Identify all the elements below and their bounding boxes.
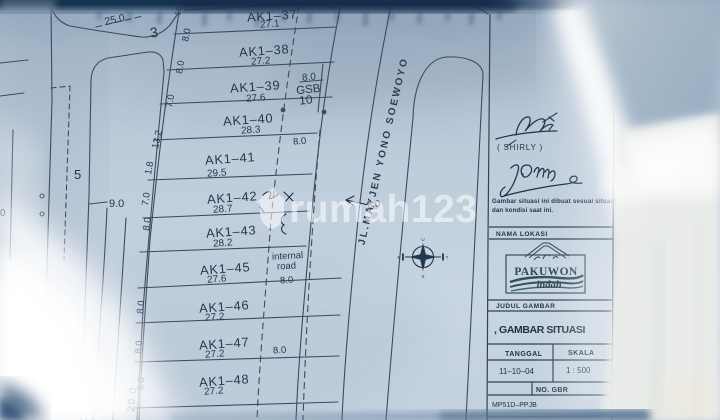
svg-text:8.0: 8.0 (273, 345, 287, 357)
svg-text:27.2: 27.2 (251, 55, 272, 67)
svg-text:JUDUL GAMBAR: JUDUL GAMBAR (496, 303, 555, 310)
svg-text:8.0: 8.0 (174, 60, 187, 75)
svg-text:27.2: 27.2 (204, 385, 225, 397)
svg-text:T: T (446, 255, 449, 260)
svg-text:MP51D–PPJB: MP51D–PPJB (492, 402, 537, 409)
svg-text:8.0: 8.0 (141, 217, 154, 232)
svg-text:( SHIRLY ): ( SHIRLY ) (497, 143, 543, 152)
svg-text:27.6: 27.6 (207, 273, 228, 285)
svg-text:27.2: 27.2 (205, 311, 226, 323)
svg-text:8.0: 8.0 (135, 300, 147, 314)
svg-text:7.0: 7.0 (164, 94, 177, 109)
svg-text:7.0: 7.0 (140, 192, 153, 207)
svg-text:28.3: 28.3 (241, 124, 262, 136)
svg-text:9.0: 9.0 (109, 198, 124, 210)
svg-text:TANGGAL: TANGGAL (505, 351, 543, 358)
svg-text:28.7: 28.7 (213, 203, 234, 215)
svg-text:dan kondisi saat ini.: dan kondisi saat ini. (492, 207, 553, 214)
svg-text:27.6: 27.6 (246, 92, 267, 104)
svg-text:27.1: 27.1 (260, 18, 281, 30)
svg-text:1.8: 1.8 (143, 161, 156, 176)
svg-text:10: 10 (298, 92, 313, 107)
svg-text:road: road (277, 260, 297, 272)
svg-text:S: S (421, 274, 424, 279)
svg-text:rumah123: rumah123 (289, 188, 477, 231)
svg-text:28.2: 28.2 (213, 237, 234, 249)
svg-text:29.5: 29.5 (207, 167, 228, 179)
svg-text:NO. GBR: NO. GBR (536, 387, 568, 394)
svg-text:U: U (421, 237, 424, 242)
svg-text:8.0: 8.0 (293, 136, 307, 148)
svg-text:NAMA LOKASI: NAMA LOKASI (496, 231, 548, 238)
svg-text:, GAMBAR SITUASI: , GAMBAR SITUASI (494, 324, 586, 336)
svg-text:8.0: 8.0 (280, 275, 294, 287)
svg-text:27.2: 27.2 (205, 348, 226, 360)
svg-text:indah: indah (536, 280, 561, 291)
svg-text:8.0: 8.0 (302, 71, 317, 83)
svg-text:5: 5 (74, 167, 81, 182)
svg-text:B: B (397, 255, 400, 260)
svg-text:11–10–04: 11–10–04 (499, 367, 535, 376)
